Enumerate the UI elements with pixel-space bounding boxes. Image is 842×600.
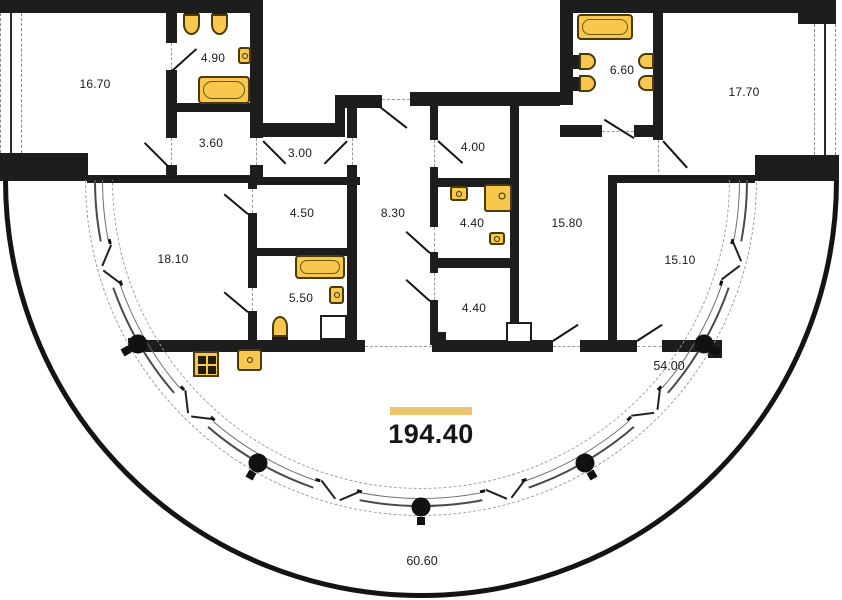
total-area-label: 194.40: [371, 419, 491, 450]
toilet-icon: [272, 316, 288, 337]
door-opening: [256, 138, 257, 165]
sink-icon: [450, 186, 468, 201]
door-opening: [434, 140, 435, 167]
toilet-icon: [183, 14, 200, 35]
total-area-callout: 194.40: [371, 407, 491, 450]
drain-dot: [334, 292, 340, 298]
toilet-icon: [211, 14, 228, 35]
wall-segment: [755, 155, 839, 181]
room-label-corridor-8-30: 8.30: [381, 206, 405, 220]
floor-plan-canvas: 16.70 4.90 3.60 3.00 4.50 5.50 18.10 8.3…: [0, 0, 842, 600]
room-label-15-80: 15.80: [551, 216, 582, 230]
bathtub-basin: [582, 19, 628, 35]
door-leaf: [662, 140, 688, 168]
shower-icon: [484, 184, 512, 212]
bathtub-basin: [203, 81, 245, 99]
burner-dot: [198, 366, 206, 374]
door-leaf: [171, 48, 197, 72]
wall-segment: [560, 13, 573, 105]
stove-icon: [193, 351, 219, 377]
burner-dot: [198, 356, 206, 364]
bathtub-icon: [198, 76, 250, 104]
terrace-area-label: 54.00: [653, 359, 684, 373]
door-opening: [658, 140, 659, 172]
room-label-living-16-70: 16.70: [79, 77, 110, 91]
toilet-icon: [579, 53, 596, 70]
door-opening: [171, 138, 172, 165]
bathtub-icon: [577, 14, 633, 40]
wall-segment: [0, 153, 88, 181]
door-opening: [434, 273, 435, 300]
drain-dot: [494, 236, 500, 242]
room-label-bath-6-60: 6.60: [610, 63, 634, 77]
room-label-4-50: 4.50: [290, 206, 314, 220]
wall-segment: [430, 105, 438, 140]
door-opening: [252, 189, 253, 213]
window-glazing: [0, 13, 22, 153]
room-label-bath-4-90: 4.90: [201, 51, 225, 65]
wall-segment: [410, 92, 560, 106]
duct-shaft: [506, 322, 532, 343]
wall-segment: [250, 165, 263, 180]
room-label-17-70: 17.70: [728, 85, 759, 99]
bathtub-icon: [295, 255, 345, 279]
bidet-icon: [579, 75, 596, 92]
window-glazing: [814, 24, 836, 155]
door-opening: [553, 346, 580, 347]
duct-shaft: [320, 315, 347, 340]
total-area-accent-bar: [390, 407, 472, 415]
wall-segment: [250, 13, 263, 103]
room-label-bath-5-50: 5.50: [289, 291, 313, 305]
window-glass-line: [824, 24, 826, 155]
drain-dot: [247, 357, 253, 363]
wall-segment: [166, 13, 177, 43]
sink-icon: [638, 75, 654, 91]
door-leaf: [262, 140, 286, 164]
drain-dot: [242, 53, 248, 59]
wall-segment: [634, 125, 653, 137]
column-dot: [128, 334, 147, 353]
drain-dot: [498, 192, 505, 199]
wall-segment: [166, 165, 177, 178]
door-opening: [434, 227, 435, 252]
door-opening: [171, 43, 172, 70]
room-label-15-10: 15.10: [664, 253, 695, 267]
wall-segment: [347, 105, 357, 138]
sink-icon: [237, 349, 262, 371]
column-dot: [412, 498, 431, 517]
door-leaf: [604, 119, 635, 139]
room-label-hall-3-60: 3.60: [199, 136, 223, 150]
door-leaf: [379, 106, 407, 129]
door-leaf: [144, 142, 169, 167]
sink-icon: [489, 232, 505, 245]
room-label-18-10: 18.10: [157, 252, 188, 266]
wall-segment: [560, 0, 836, 13]
balcony-area-label: 60.60: [406, 554, 437, 568]
room-label-hall-3-00: 3.00: [288, 146, 312, 160]
room-label-4-40-bottom: 4.40: [462, 301, 486, 315]
window-glass-line: [10, 13, 12, 153]
sink-icon: [638, 53, 654, 69]
wall-segment: [653, 13, 663, 140]
door-leaf: [324, 140, 348, 164]
door-opening: [602, 131, 634, 132]
door-opening: [352, 138, 353, 165]
sink-icon: [329, 286, 344, 304]
drain-dot: [456, 191, 462, 197]
wall-segment: [0, 0, 263, 13]
wall-segment: [166, 70, 177, 138]
sink-icon: [238, 47, 251, 64]
door-opening: [382, 99, 410, 100]
wall-segment: [560, 125, 602, 137]
glazing-mullion-tick: [417, 517, 425, 525]
room-label-4-40-top: 4.40: [460, 216, 484, 230]
burner-dot: [208, 356, 216, 364]
wall-segment: [263, 123, 345, 137]
door-opening: [637, 346, 662, 347]
room-label-4-00: 4.00: [461, 140, 485, 154]
door-opening: [252, 288, 253, 311]
door-leaf: [437, 140, 463, 164]
wall-segment: [177, 103, 262, 112]
burner-dot: [208, 366, 216, 374]
door-opening: [365, 346, 432, 347]
bathtub-basin: [300, 260, 340, 274]
